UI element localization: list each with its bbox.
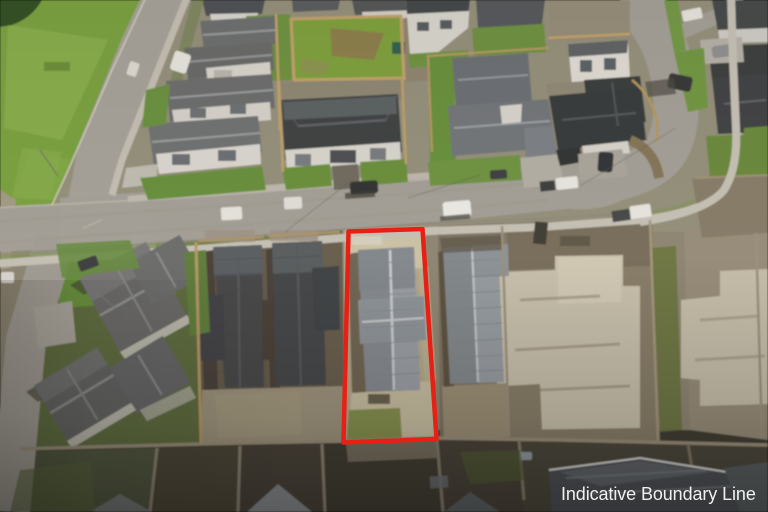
svg-text:Indicative Boundary Line: Indicative Boundary Line (561, 484, 756, 504)
